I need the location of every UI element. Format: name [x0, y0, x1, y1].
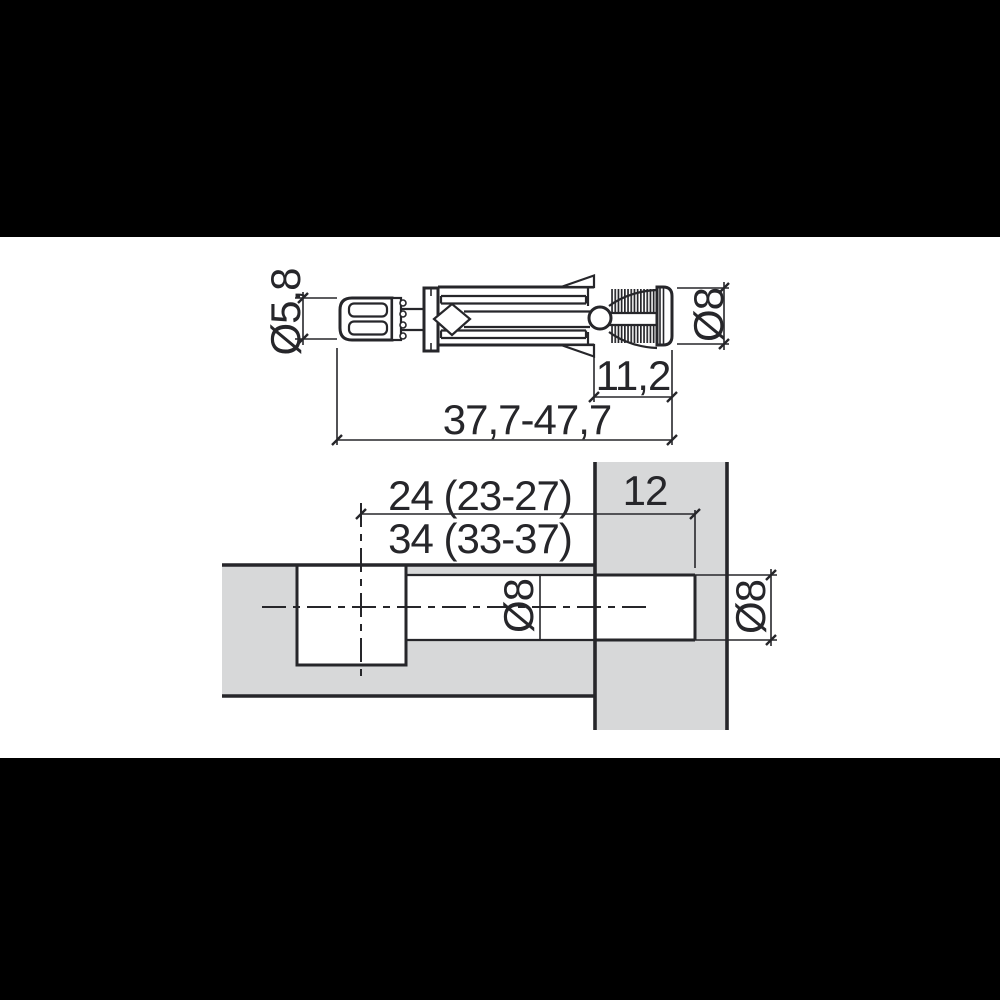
overall-length-label: 37,7-47,7	[402, 399, 652, 441]
bore-diameter-label: Ø8	[498, 561, 538, 651]
drilling-depth-b-label: 34 (33-37)	[345, 518, 615, 560]
anchor-serration	[392, 298, 406, 340]
anchor-sleeve-body	[434, 287, 594, 345]
panel-thickness-label: 12	[600, 470, 690, 512]
anchor-cap	[340, 298, 392, 340]
drilling-depth-a-label: 24 (23-27)	[345, 475, 615, 517]
anchor-neck-and-collar	[401, 288, 438, 351]
thread-length-label: 11,2	[568, 355, 698, 397]
anchor-thread-section	[589, 287, 672, 348]
page: Ø5,8 Ø8 11,2 37,7-47,7 24 (23-27) 34 (33…	[0, 0, 1000, 1000]
sleeve-diameter-label: Ø8	[688, 270, 728, 360]
square-recess	[297, 565, 406, 665]
panel-bore-diameter-label: Ø8	[730, 562, 770, 652]
drawing-canvas: Ø5,8 Ø8 11,2 37,7-47,7 24 (23-27) 34 (33…	[0, 237, 1000, 758]
head-diameter-label: Ø5,8	[265, 242, 305, 382]
